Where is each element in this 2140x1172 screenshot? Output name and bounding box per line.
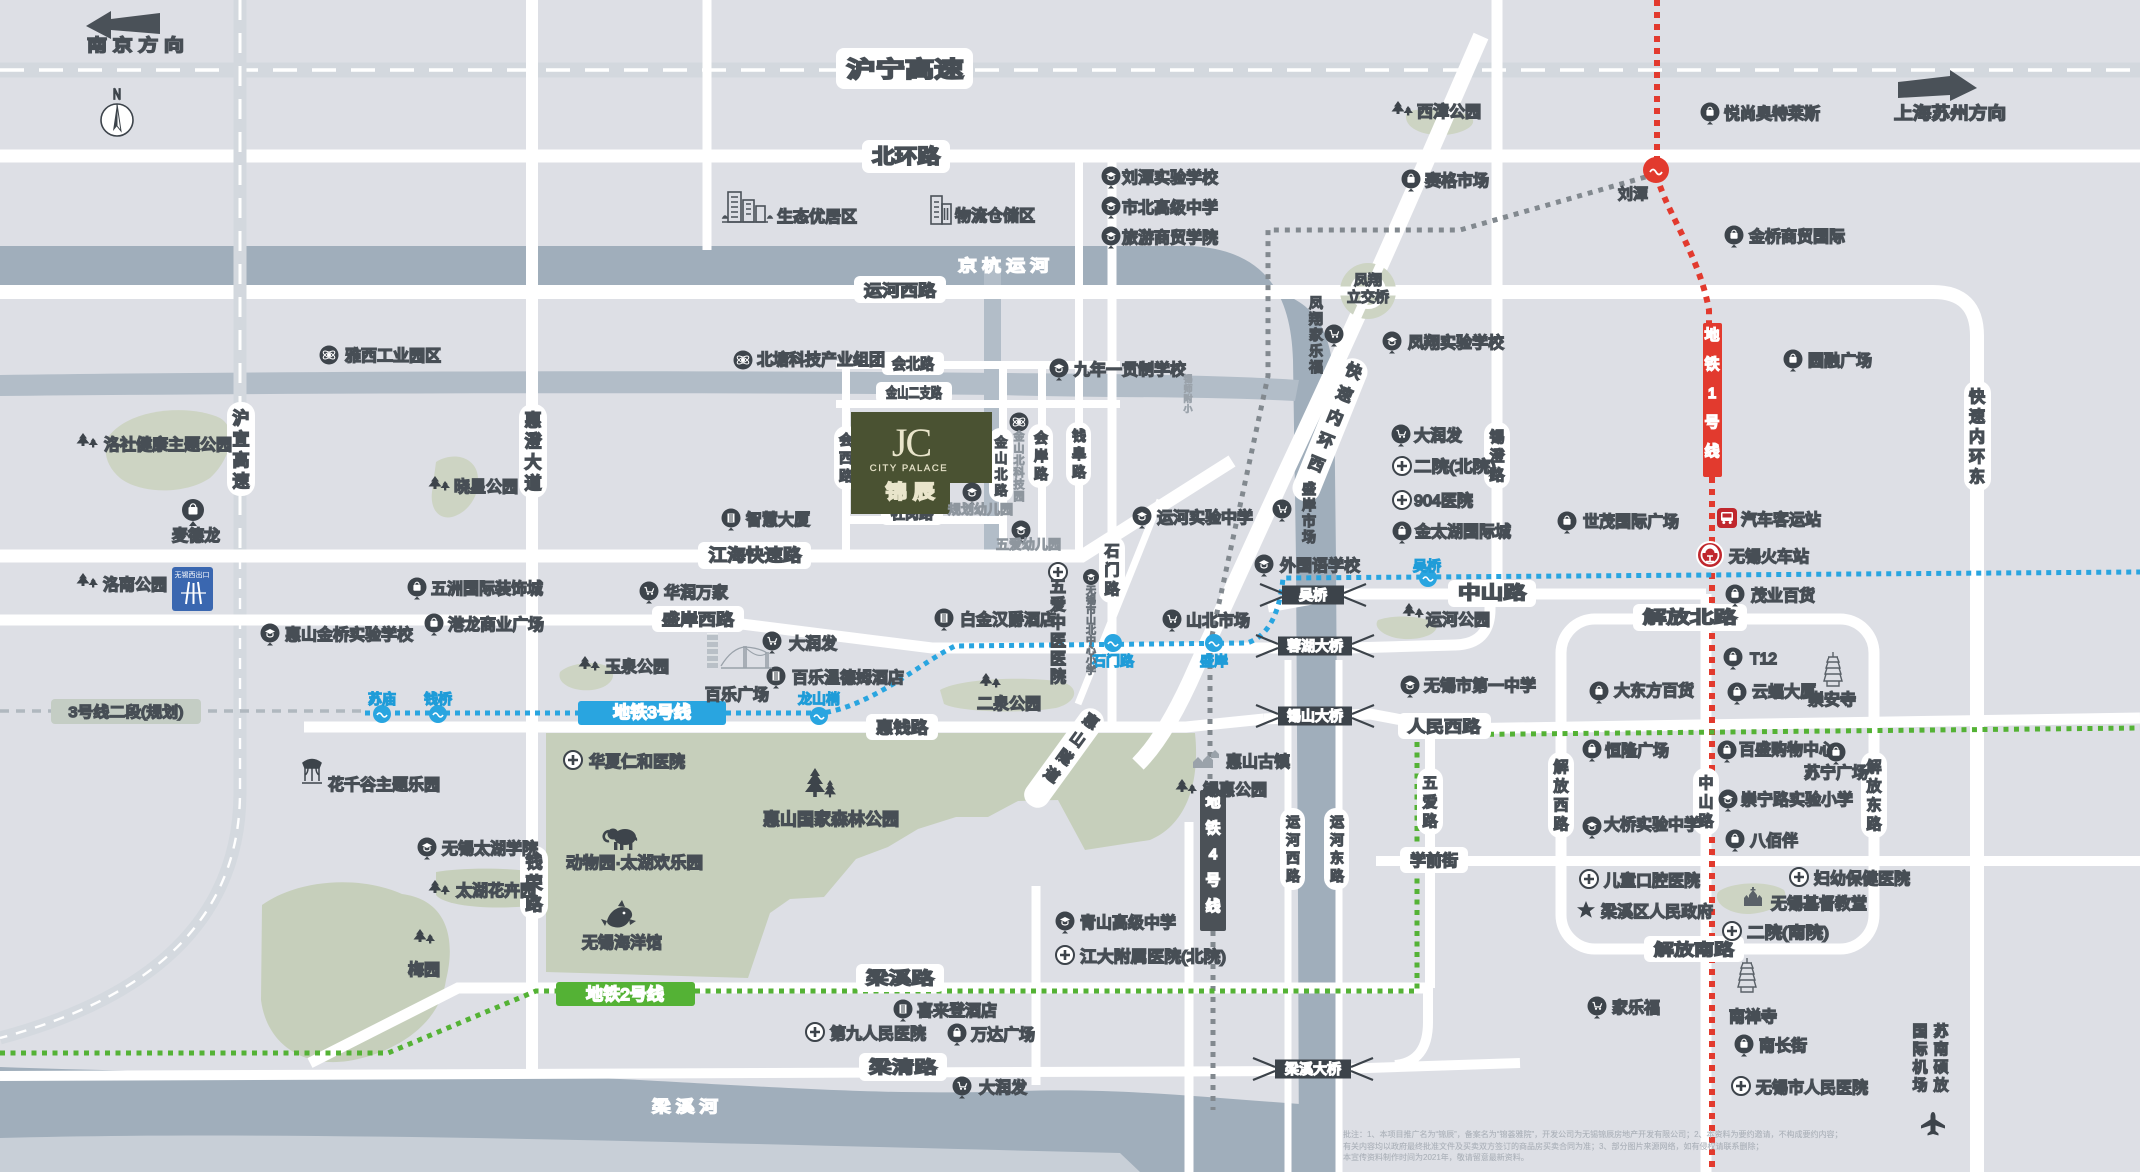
svg-text:恒隆广场: 恒隆广场 [1605, 742, 1669, 760]
svg-text:凤: 凤 [1309, 295, 1323, 311]
svg-text:麦德龙: 麦德龙 [172, 527, 220, 545]
svg-text:北: 北 [1014, 454, 1025, 467]
svg-text:金: 金 [1014, 429, 1025, 443]
svg-text:梁 溪 河: 梁 溪 河 [652, 1098, 718, 1116]
svg-text:世茂国际广场: 世茂国际广场 [1583, 513, 1679, 531]
svg-text:科: 科 [1014, 465, 1025, 479]
svg-text:沪: 沪 [233, 409, 250, 428]
svg-text:喜来登酒店: 喜来登酒店 [917, 1002, 997, 1020]
svg-text:学前街: 学前街 [1410, 852, 1458, 870]
svg-text:西: 西 [1553, 797, 1568, 814]
svg-text:动物园·太湖欢乐园: 动物园·太湖欢乐园 [566, 854, 703, 872]
svg-text:无锡火车站: 无锡火车站 [1729, 548, 1809, 566]
svg-text:吴桥: 吴桥 [1299, 587, 1327, 603]
svg-text:乐: 乐 [1309, 343, 1323, 359]
svg-text:崇安寺: 崇安寺 [1808, 691, 1856, 709]
svg-text:洛社健康主题公园: 洛社健康主题公园 [104, 436, 232, 454]
svg-text:翔: 翔 [1309, 311, 1323, 327]
svg-text:东: 东 [1866, 797, 1881, 814]
svg-text:家乐福: 家乐福 [1612, 999, 1660, 1017]
svg-text:学: 学 [1086, 664, 1096, 677]
svg-text:物流仓储区: 物流仓储区 [955, 207, 1035, 225]
svg-text:解放北路: 解放北路 [1643, 608, 1737, 627]
svg-text:JC: JC [892, 420, 931, 465]
svg-text:无锡西出口: 无锡西出口 [175, 570, 210, 579]
svg-text:人民西路: 人民西路 [1408, 718, 1481, 736]
svg-text:凤翔: 凤翔 [1354, 272, 1382, 288]
svg-text:梁清路: 梁清路 [869, 1058, 937, 1077]
svg-text:山: 山 [994, 451, 1007, 466]
svg-text:市: 市 [1302, 513, 1316, 529]
svg-text:大润发: 大润发 [1414, 427, 1462, 445]
svg-text:地: 地 [1704, 327, 1719, 344]
svg-text:第九人民医院: 第九人民医院 [830, 1025, 926, 1043]
svg-text:CITY PALACE: CITY PALACE [870, 463, 949, 474]
svg-text:万达广场: 万达广场 [971, 1026, 1035, 1044]
svg-text:苏宁广场: 苏宁广场 [1804, 764, 1868, 782]
svg-text:云蝠大厦: 云蝠大厦 [1752, 683, 1816, 701]
svg-text:京 杭 运 河: 京 杭 运 河 [958, 257, 1049, 275]
svg-text:小: 小 [1183, 404, 1192, 414]
svg-text:二院(北院): 二院(北院) [1414, 458, 1496, 476]
svg-text:九年一贯制学校: 九年一贯制学校 [1074, 361, 1186, 379]
svg-text:妇幼保健医院: 妇幼保健医院 [1814, 870, 1910, 888]
svg-text:石门路: 石门路 [1092, 653, 1134, 669]
svg-text:五: 五 [1050, 579, 1066, 596]
svg-text:西: 西 [839, 450, 853, 466]
svg-text:盛岸西路: 盛岸西路 [662, 611, 734, 629]
svg-text:北塘科技产业组团: 北塘科技产业组团 [757, 351, 885, 369]
svg-text:西漳公园: 西漳公园 [1417, 103, 1481, 121]
svg-text:3号线二段(规划): 3号线二段(规划) [69, 704, 184, 721]
svg-text:路: 路 [1330, 868, 1344, 884]
svg-text:1: 1 [1708, 385, 1716, 402]
svg-text:崇宁路实验小学: 崇宁路实验小学 [1741, 791, 1853, 809]
svg-text:茂业百货: 茂业百货 [1751, 587, 1815, 605]
svg-text:放: 放 [1553, 778, 1568, 795]
svg-text:路: 路 [1698, 813, 1713, 830]
svg-text:青山高级中学: 青山高级中学 [1080, 914, 1176, 932]
svg-text:五洲国际装饰城: 五洲国际装饰城 [431, 580, 543, 598]
svg-text:无锡海洋馆: 无锡海洋馆 [582, 934, 662, 952]
svg-text:梁溪路: 梁溪路 [866, 969, 934, 988]
svg-text:南长街: 南长街 [1759, 1037, 1807, 1055]
svg-text:会: 会 [839, 432, 853, 448]
svg-text:南 京 方 向: 南 京 方 向 [87, 36, 184, 55]
svg-text:锦 辰: 锦 辰 [886, 481, 935, 503]
svg-text:赛格市场: 赛格市场 [1425, 171, 1489, 190]
svg-text:路: 路 [1553, 816, 1568, 833]
svg-text:锡山大桥: 锡山大桥 [1287, 708, 1343, 724]
svg-text:花千谷主题乐园: 花千谷主题乐园 [328, 776, 440, 794]
svg-text:路: 路 [994, 483, 1007, 498]
svg-text:环: 环 [1969, 449, 1985, 466]
svg-text:太湖花卉园: 太湖花卉园 [456, 882, 536, 900]
svg-text:放: 放 [1866, 778, 1881, 795]
svg-text:江海快速路: 江海快速路 [709, 546, 802, 565]
svg-text:南禅寺: 南禅寺 [1729, 1008, 1777, 1026]
svg-text:钱: 钱 [1072, 428, 1086, 444]
svg-text:904医院: 904医院 [1414, 492, 1473, 510]
svg-text:路: 路 [1286, 868, 1300, 884]
svg-text:玉泉公园: 玉泉公园 [605, 658, 669, 676]
svg-text:大桥实验中学: 大桥实验中学 [1604, 816, 1700, 834]
svg-text:家: 家 [1309, 327, 1323, 343]
svg-text:岸: 岸 [1302, 497, 1316, 513]
svg-text:解: 解 [1553, 759, 1568, 776]
svg-text:无锡太湖学院: 无锡太湖学院 [442, 840, 538, 858]
svg-text:运河公园: 运河公园 [1426, 611, 1490, 629]
svg-text:东: 东 [1330, 850, 1344, 866]
svg-text:百乐温德姆酒店: 百乐温德姆酒店 [792, 669, 904, 687]
svg-text:洛南公园: 洛南公园 [103, 576, 167, 594]
svg-text:机: 机 [1912, 1059, 1927, 1076]
svg-text:国: 国 [1912, 1023, 1927, 1040]
svg-text:八佰伴: 八佰伴 [1750, 832, 1798, 850]
svg-text:T12: T12 [1750, 651, 1777, 668]
svg-text:吴桥: 吴桥 [1413, 558, 1441, 574]
svg-text:百盛购物中心: 百盛购物中心 [1739, 741, 1835, 759]
svg-text:运河实验中学: 运河实验中学 [1157, 509, 1253, 527]
svg-text:刘潭实验学校: 刘潭实验学校 [1122, 169, 1218, 187]
svg-text:苏: 苏 [1933, 1023, 1948, 1040]
svg-text:北环路: 北环路 [872, 145, 940, 168]
svg-text:大润发: 大润发 [979, 1079, 1027, 1097]
svg-text:华夏仁和医院: 华夏仁和医院 [589, 753, 685, 771]
svg-text:内: 内 [1969, 428, 1985, 446]
svg-text:场: 场 [1912, 1077, 1927, 1094]
svg-text:惠钱路: 惠钱路 [876, 719, 928, 737]
svg-text:快: 快 [1969, 388, 1985, 406]
svg-text:山北市场: 山北市场 [1186, 612, 1250, 630]
svg-text:旅游商贸学院: 旅游商贸学院 [1122, 229, 1218, 247]
svg-text:儿童口腔医院: 儿童口腔医院 [1604, 871, 1700, 890]
svg-text:汽车客运站: 汽车客运站 [1741, 511, 1821, 529]
svg-text:河: 河 [1286, 832, 1300, 848]
svg-text:道: 道 [525, 474, 542, 493]
svg-text:场: 场 [1302, 529, 1316, 545]
svg-text:岸: 岸 [1034, 448, 1048, 464]
svg-text:有关内容均以政府最终批准文件及买卖双方签订的商品房买卖合同为: 有关内容均以政府最终批准文件及买卖双方签订的商品房买卖合同为准；3、部分图片来源… [1343, 1141, 1763, 1151]
svg-text:梅园: 梅园 [408, 961, 440, 979]
svg-text:江大附属医院(北院): 江大附属医院(北院) [1080, 948, 1226, 966]
svg-text:硕: 硕 [1933, 1059, 1948, 1076]
svg-text:刘潭: 刘潭 [1618, 186, 1648, 203]
svg-text:医: 医 [1050, 633, 1066, 650]
svg-text:立交桥: 立交桥 [1347, 289, 1389, 305]
svg-text:圆融广场: 圆融广场 [1808, 352, 1872, 370]
svg-text:石: 石 [1104, 543, 1119, 560]
svg-text:运河西路: 运河西路 [864, 282, 936, 300]
svg-text:爱: 爱 [1422, 794, 1437, 811]
svg-text:锡: 锡 [1489, 429, 1504, 446]
svg-text:宜: 宜 [233, 430, 250, 449]
svg-text:蓉湖大桥: 蓉湖大桥 [1287, 638, 1343, 654]
svg-text:金桥商贸国际: 金桥商贸国际 [1749, 228, 1845, 246]
svg-text:雅西工业园区: 雅西工业园区 [345, 347, 441, 365]
svg-text:皋: 皋 [1072, 446, 1086, 462]
svg-text:盛: 盛 [1302, 481, 1316, 497]
svg-text:北: 北 [994, 467, 1007, 482]
svg-text:医: 医 [1050, 651, 1066, 668]
svg-text:会北路: 会北路 [892, 356, 934, 373]
svg-text:大润发: 大润发 [789, 635, 837, 653]
svg-text:沪宁高速: 沪宁高速 [847, 57, 964, 82]
svg-text:大: 大 [525, 453, 542, 472]
svg-text:生态优居区: 生态优居区 [777, 208, 857, 226]
svg-text:山: 山 [1698, 794, 1713, 811]
svg-text:金山二支路: 金山二支路 [886, 385, 942, 401]
svg-text:路: 路 [1104, 581, 1119, 598]
svg-text:惠: 惠 [525, 411, 542, 430]
svg-text:N: N [113, 86, 121, 103]
svg-text:无锡市第一中学: 无锡市第一中学 [1424, 677, 1536, 695]
svg-text:院: 院 [1050, 668, 1066, 686]
svg-text:港龙商业广场: 港龙商业广场 [448, 616, 544, 634]
svg-text:智慧大厦: 智慧大厦 [746, 511, 810, 529]
svg-text:地铁3号线: 地铁3号线 [613, 703, 691, 722]
svg-text:路: 路 [1072, 464, 1086, 480]
svg-text:园: 园 [1014, 490, 1025, 503]
svg-text:路: 路 [839, 468, 853, 484]
svg-text:线: 线 [1205, 898, 1220, 915]
svg-text:百乐广场: 百乐广场 [705, 686, 769, 704]
svg-text:号: 号 [1205, 872, 1220, 889]
svg-text:放: 放 [1933, 1077, 1948, 1094]
svg-text:二院(南院): 二院(南院) [1747, 924, 1829, 942]
svg-text:惠山金桥实验学校: 惠山金桥实验学校 [285, 626, 413, 644]
svg-text:际: 际 [1912, 1041, 1927, 1058]
svg-text:晓星公园: 晓星公园 [454, 478, 518, 496]
svg-text:会: 会 [1034, 430, 1048, 446]
svg-text:速: 速 [1969, 408, 1985, 426]
svg-text:二泉公园: 二泉公园 [977, 695, 1041, 713]
svg-text:解放南路: 解放南路 [1654, 941, 1734, 959]
svg-text:凤翔实验学校: 凤翔实验学校 [1408, 334, 1504, 352]
svg-text:钱桥: 钱桥 [424, 691, 452, 707]
svg-text:华润万家: 华润万家 [664, 584, 728, 602]
svg-text:运: 运 [1286, 814, 1300, 830]
svg-text:五: 五 [1422, 775, 1437, 792]
svg-text:路: 路 [1034, 466, 1048, 482]
svg-text:铁: 铁 [1205, 820, 1220, 837]
svg-text:澄: 澄 [525, 432, 542, 451]
svg-text:速: 速 [233, 472, 250, 491]
svg-text:技: 技 [1014, 478, 1025, 491]
svg-text:师: 师 [1183, 383, 1192, 394]
svg-text:苏庙: 苏庙 [368, 691, 396, 707]
svg-text:铁: 铁 [1704, 356, 1719, 373]
svg-text:运: 运 [1330, 814, 1344, 830]
svg-text:梁溪区人民政府: 梁溪区人民政府 [1601, 903, 1713, 921]
svg-text:附: 附 [1183, 393, 1192, 404]
svg-text:梁溪大桥: 梁溪大桥 [1285, 1061, 1341, 1077]
svg-text:门: 门 [1104, 562, 1119, 579]
svg-text:市北高级中学: 市北高级中学 [1122, 199, 1218, 217]
svg-text:批注：1、本项目推广名为“锦辰”，备案名为“锦荟雅院”，开发: 批注：1、本项目推广名为“锦辰”，备案名为“锦荟雅院”，开发公司为无锡锦辰房地产… [1343, 1129, 1843, 1139]
svg-text:南: 南 [1933, 1041, 1948, 1058]
svg-text:金: 金 [994, 435, 1007, 450]
svg-text:悦尚奥特莱斯: 悦尚奥特莱斯 [1724, 105, 1820, 123]
svg-text:山: 山 [1014, 442, 1025, 455]
svg-text:规划幼儿园: 规划幼儿园 [948, 502, 1013, 517]
svg-text:高: 高 [233, 451, 250, 470]
svg-text:锡: 锡 [1183, 374, 1192, 384]
svg-text:4: 4 [1209, 846, 1217, 863]
svg-text:地铁2号线: 地铁2号线 [586, 985, 664, 1004]
svg-text:线: 线 [1704, 443, 1719, 460]
svg-text:中山路: 中山路 [1458, 583, 1526, 603]
svg-text:中: 中 [1698, 775, 1713, 792]
svg-text:外国语学校: 外国语学校 [1280, 557, 1360, 575]
svg-text:福: 福 [1309, 359, 1323, 375]
svg-text:河: 河 [1330, 832, 1344, 848]
svg-text:大东方百货: 大东方百货 [1614, 682, 1694, 700]
svg-text:路: 路 [1866, 816, 1881, 833]
svg-text:惠山古镇: 惠山古镇 [1226, 753, 1290, 771]
svg-text:无锡市人民医院: 无锡市人民医院 [1756, 1079, 1868, 1097]
svg-text:本宣传资料制作时间为2021年，敬请留意最新资料。: 本宣传资料制作时间为2021年，敬请留意最新资料。 [1343, 1152, 1529, 1162]
svg-text:解: 解 [1866, 759, 1881, 776]
svg-text:路: 路 [1422, 813, 1437, 830]
svg-text:号: 号 [1704, 414, 1719, 431]
svg-text:上海苏州方向: 上海苏州方向 [1894, 104, 2006, 123]
svg-text:龙山梢: 龙山梢 [798, 691, 840, 707]
svg-text:无锡基督教堂: 无锡基督教堂 [1771, 895, 1867, 913]
svg-text:五爱幼儿园: 五爱幼儿园 [996, 537, 1061, 552]
svg-text:锡惠公园: 锡惠公园 [1203, 781, 1267, 799]
svg-text:西: 西 [1286, 850, 1300, 866]
svg-text:白金汉爵酒店: 白金汉爵酒店 [960, 611, 1056, 629]
svg-text:惠山国家森林公园: 惠山国家森林公园 [763, 810, 899, 829]
svg-text:金太湖国际城: 金太湖国际城 [1415, 523, 1511, 541]
svg-text:盛岸: 盛岸 [1200, 653, 1228, 669]
svg-text:东: 东 [1969, 468, 1985, 486]
